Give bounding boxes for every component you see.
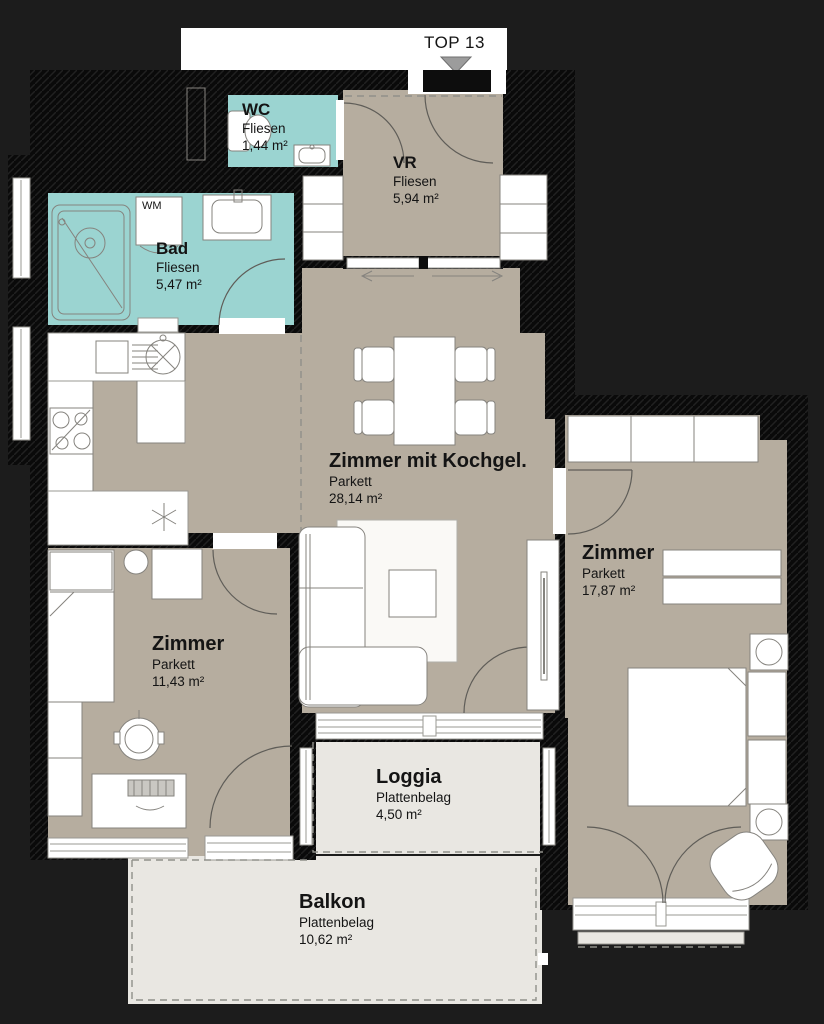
dining-table bbox=[394, 337, 455, 445]
room-area: 28,14 m² bbox=[329, 490, 527, 507]
label-bedroom-right: Zimmer Parkett 17,87 m² bbox=[582, 542, 654, 599]
nightstand bbox=[152, 549, 202, 599]
door-gap-bad bbox=[219, 318, 285, 334]
room-floor-type: Fliesen bbox=[242, 120, 288, 137]
room-floor-type: Parkett bbox=[582, 565, 654, 582]
room-floor-type: Parkett bbox=[329, 473, 527, 490]
room-name: Balkon bbox=[299, 891, 374, 914]
window-bedroom-left bbox=[48, 838, 188, 858]
wall-cupboard bbox=[138, 318, 178, 332]
kitchen-counter-mid bbox=[137, 381, 185, 443]
label-wc: WC Fliesen 1,44 m² bbox=[242, 100, 288, 154]
room-name: Zimmer bbox=[582, 542, 654, 565]
room-name: Loggia bbox=[376, 766, 451, 789]
top-unit-label: TOP 13 bbox=[424, 33, 485, 53]
room-area: 10,62 m² bbox=[299, 931, 374, 948]
room-name: Zimmer mit Kochgel. bbox=[329, 450, 527, 473]
room-area: 5,94 m² bbox=[393, 190, 439, 207]
room-area: 17,87 m² bbox=[582, 582, 654, 599]
room-name: VR bbox=[393, 153, 439, 173]
bed bbox=[628, 668, 746, 806]
room-floor-type: Fliesen bbox=[156, 259, 202, 276]
dining-chair bbox=[354, 400, 394, 435]
sofa-seat bbox=[299, 647, 427, 705]
room-floor-type: Parkett bbox=[152, 656, 224, 673]
wardrobe bbox=[568, 416, 758, 462]
label-vr: VR Fliesen 5,94 m² bbox=[393, 153, 439, 207]
door-sill bbox=[578, 932, 744, 944]
door-gap-wc bbox=[336, 100, 344, 160]
room-area: 5,47 m² bbox=[156, 276, 202, 293]
room-area: 1,44 m² bbox=[242, 137, 288, 154]
label-bad: Bad Fliesen 5,47 m² bbox=[156, 239, 202, 293]
door-gap-bedroom-left bbox=[213, 533, 277, 549]
room-floor-type: Fliesen bbox=[393, 173, 439, 190]
rail-post bbox=[538, 953, 548, 965]
dining-chair bbox=[455, 400, 495, 435]
label-living-kitchen: Zimmer mit Kochgel. Parkett 28,14 m² bbox=[329, 450, 527, 507]
dining-chair bbox=[354, 347, 394, 382]
chair bbox=[124, 550, 148, 574]
room-living-floor-upper bbox=[302, 268, 520, 334]
wall-pillar bbox=[760, 408, 788, 440]
label-balkon: Balkon Plattenbelag 10,62 m² bbox=[299, 891, 374, 948]
label-loggia: Loggia Plattenbelag 4,50 m² bbox=[376, 766, 451, 823]
room-area: 11,43 m² bbox=[152, 673, 224, 690]
wardrobe bbox=[48, 702, 82, 816]
keyboard bbox=[128, 780, 174, 796]
room-name: Bad bbox=[156, 239, 202, 259]
coffee-table bbox=[389, 570, 436, 617]
room-name: WC bbox=[242, 100, 288, 120]
kitchen-counter-bottom bbox=[48, 491, 188, 545]
floor-plan: TOP 13 WC Fliesen 1,44 m² WM Bad Fliesen… bbox=[0, 0, 824, 1024]
pillow bbox=[50, 552, 112, 590]
label-bedroom-left: Zimmer Parkett 11,43 m² bbox=[152, 633, 224, 690]
room-floor-type: Plattenbelag bbox=[376, 789, 451, 806]
room-area: 4,50 m² bbox=[376, 806, 451, 823]
door-bedroom-left-balkon bbox=[205, 836, 293, 860]
door-gap-bedroom-right bbox=[553, 468, 566, 534]
room-name: Zimmer bbox=[152, 633, 224, 656]
entrance-door-leaf bbox=[423, 70, 491, 92]
label-washing-machine: WM bbox=[142, 200, 162, 212]
pillow bbox=[748, 672, 786, 736]
dresser bbox=[663, 550, 781, 576]
kitchen-counter-left bbox=[48, 381, 93, 491]
pillow bbox=[748, 740, 786, 804]
room-floor-type: Plattenbelag bbox=[299, 914, 374, 931]
dining-chair bbox=[455, 347, 495, 382]
